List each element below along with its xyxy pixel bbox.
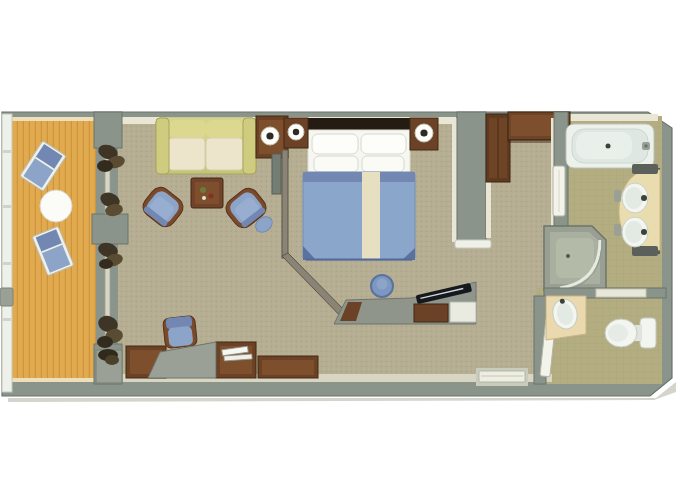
wall-panel (272, 154, 281, 194)
sofa (156, 118, 256, 174)
balcony-bottom-trim (12, 378, 96, 382)
faucet (641, 229, 647, 235)
towel-bar (614, 224, 621, 236)
console-cabinet (414, 304, 448, 322)
shower-drain (566, 254, 570, 258)
coffee-table (191, 178, 223, 208)
nightstand-with-lamp (410, 118, 438, 150)
desk-chair (163, 315, 198, 348)
sink (622, 217, 648, 247)
pillow (362, 156, 404, 172)
nightstand-with-lamp (284, 118, 308, 148)
bathtub (566, 124, 654, 168)
sink (622, 183, 648, 213)
bedroom-corridor-wall (452, 112, 491, 248)
pillow (314, 156, 358, 172)
floor-plan-canvas (0, 0, 680, 486)
balcony-railing (2, 114, 12, 392)
wall-pier (94, 112, 122, 148)
railing-handle (0, 288, 13, 306)
round-table (40, 190, 72, 222)
faucet (641, 195, 647, 201)
bed-runner (362, 172, 380, 260)
balcony-top-trim (12, 117, 96, 121)
planter-plant (105, 355, 119, 365)
pillow (312, 134, 358, 154)
duvet (303, 172, 415, 260)
double-bed (303, 130, 415, 260)
washbasin (546, 296, 586, 340)
floor-plan-image (0, 0, 680, 486)
entry-door (476, 368, 528, 386)
tub-drain (606, 144, 611, 149)
bath-top-trim (564, 114, 658, 121)
minibar-cabinet (450, 302, 476, 322)
wc-threshold (596, 289, 646, 297)
bathroom-wall (551, 112, 568, 234)
towel-bar (614, 190, 621, 202)
wall-pier (92, 214, 128, 244)
corner-shower (544, 226, 606, 291)
bedroom (284, 118, 438, 260)
toilet (605, 318, 656, 348)
pillow (361, 134, 406, 154)
